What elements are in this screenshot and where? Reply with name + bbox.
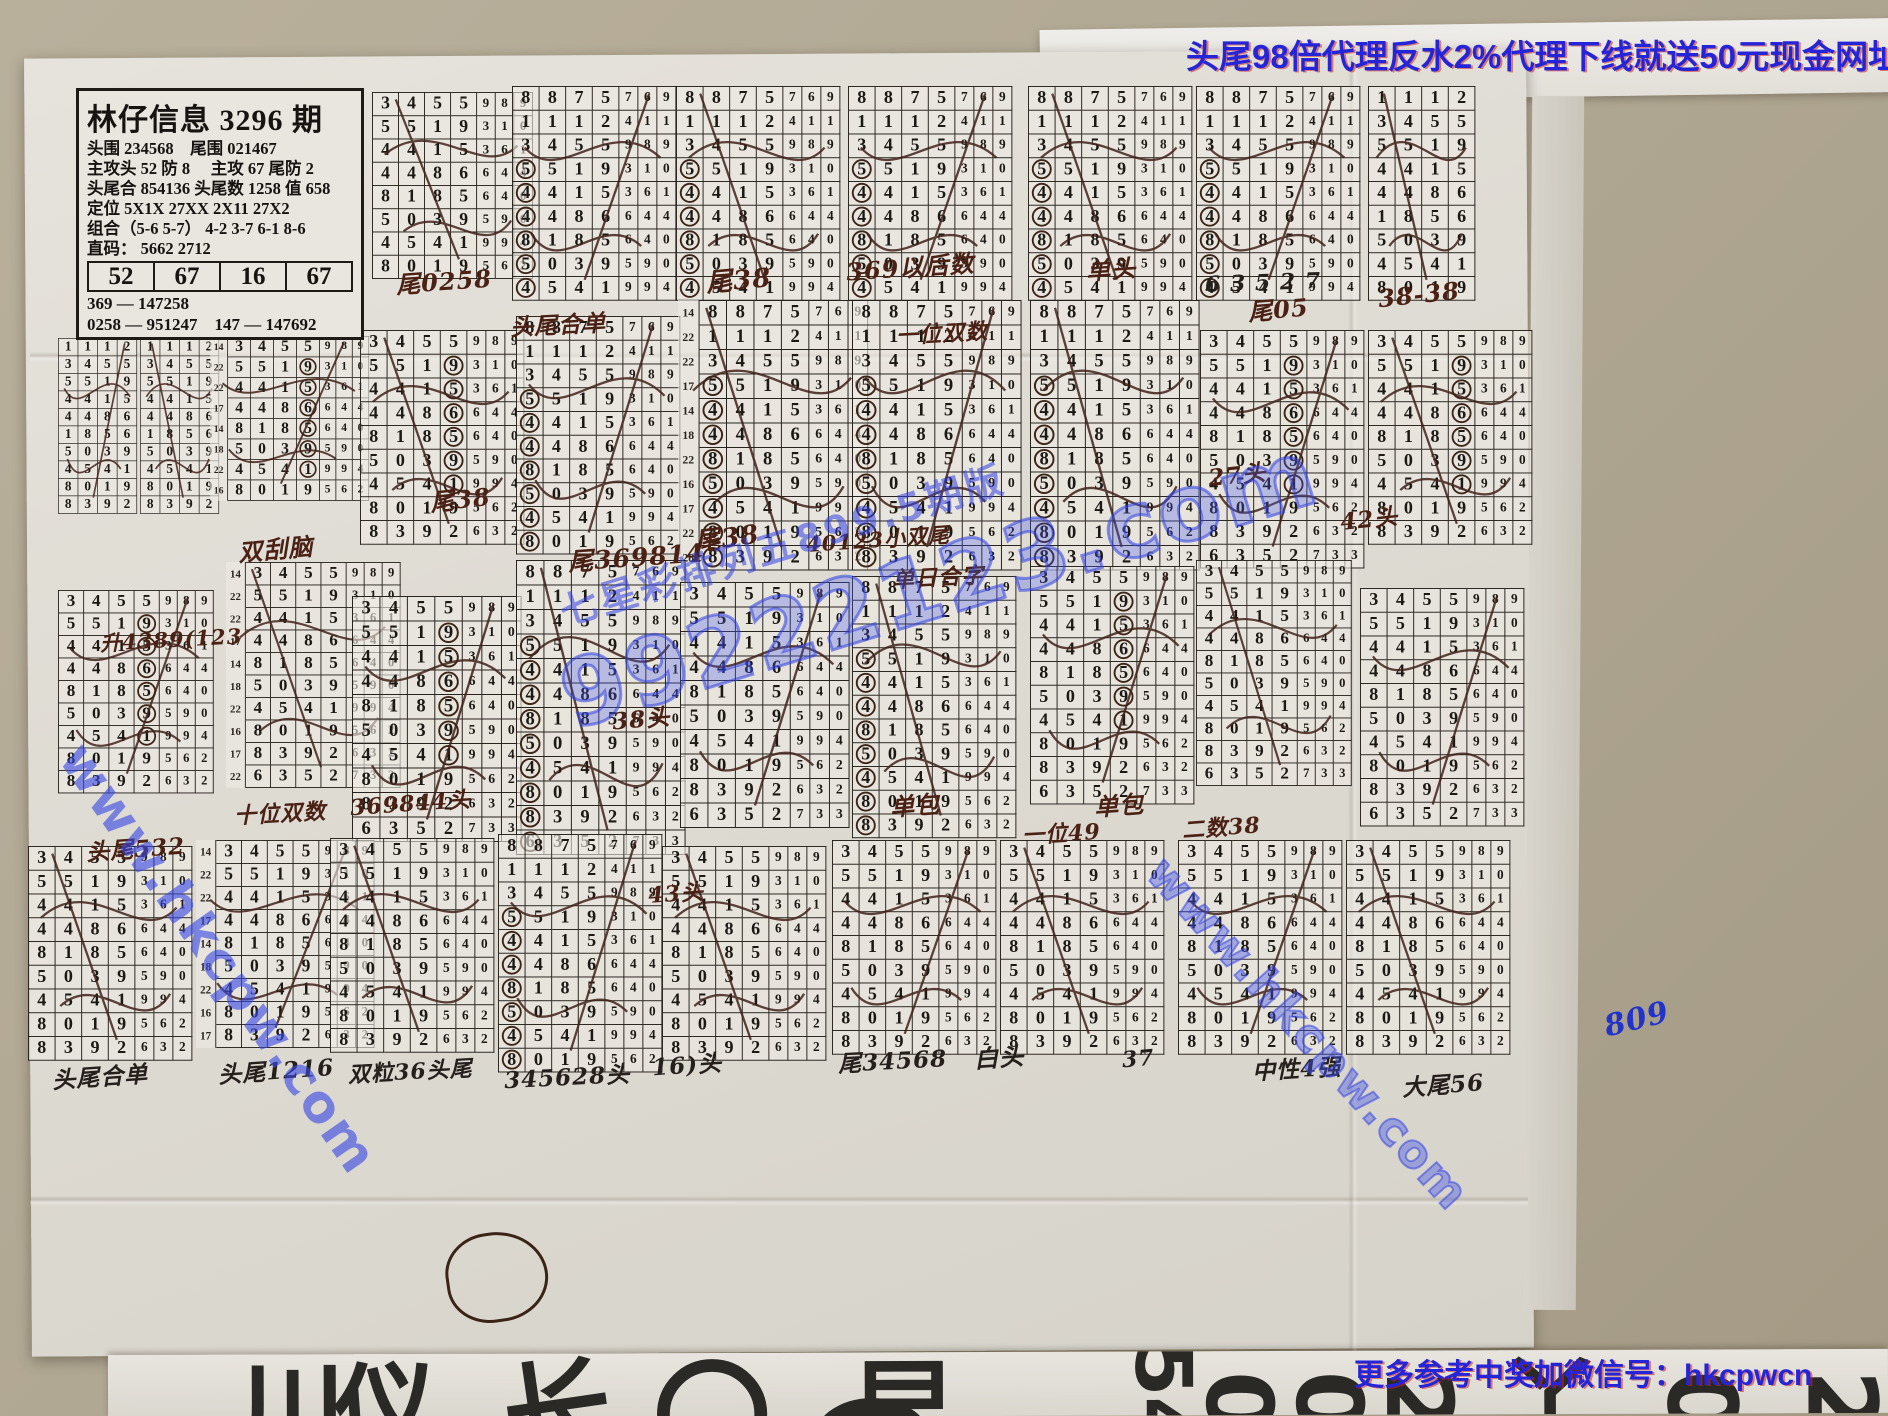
number-grid: 3455989551931044153614486644818564050395…: [1000, 840, 1164, 1055]
digit-cell: 4: [977, 912, 996, 936]
digit-cell: 9: [735, 778, 762, 803]
digit-cell: 8: [1154, 134, 1173, 158]
digit-cell: 4: [1368, 253, 1395, 277]
digit-cell: 4: [1145, 912, 1164, 936]
digit-cell: 2: [117, 496, 137, 514]
digit-cell: 3: [1085, 472, 1112, 497]
digit-cell: 3: [1028, 134, 1055, 158]
digit-cell: 0: [1145, 864, 1164, 888]
digit-cell: 3: [982, 545, 1002, 570]
digit-cell: 5: [134, 680, 159, 703]
digit-cell: 3: [55, 1036, 82, 1060]
digit-cell: 9: [592, 253, 619, 277]
digit-cell: 3: [809, 374, 829, 399]
digit-cell: 3: [1387, 802, 1414, 826]
digit-cell: 9: [763, 705, 790, 730]
digit-cell: 5: [1272, 560, 1297, 583]
digit-cell: 3: [1303, 181, 1322, 205]
key-number-cell: 52: [89, 263, 155, 290]
digit-cell: 5: [1368, 449, 1395, 473]
digit-cell: 9: [928, 158, 955, 182]
digit-cell: 4: [1304, 912, 1323, 936]
digit-cell: 8: [330, 1005, 357, 1029]
digit-cell: 0: [195, 703, 213, 726]
digit-cell: 0: [1333, 673, 1351, 696]
digit-cell: 1: [134, 725, 159, 748]
digit-cell: 9: [1304, 959, 1323, 983]
digit-cell: 4: [84, 590, 109, 613]
digit-cell: 1: [571, 781, 598, 806]
digit-cell: 1: [852, 600, 879, 624]
digit-cell: 5: [78, 373, 98, 391]
digit-cell: 8: [1254, 402, 1281, 426]
digit-cell: 5: [1346, 864, 1373, 888]
digit-cell: 0: [1173, 253, 1192, 277]
digit-cell: 5: [1250, 134, 1277, 158]
digit-cell: 3: [1422, 229, 1449, 253]
digit-cell: 4: [380, 596, 407, 621]
digit-cell: 5: [437, 1005, 456, 1029]
digit-cell: 5: [135, 1013, 154, 1037]
digit-cell: 1: [475, 886, 494, 910]
digit-cell: 9: [1448, 354, 1475, 378]
digit-cell: 8: [624, 882, 643, 906]
digit-cell: 1: [543, 459, 570, 483]
digit-cell: 1: [1247, 718, 1272, 741]
digit-cell: 3: [810, 778, 830, 803]
digit-cell: 9: [1272, 718, 1297, 741]
digit-cell: 5: [1027, 983, 1054, 1007]
digit-cell: 8: [1030, 661, 1057, 685]
digit-cell: 9: [982, 496, 1002, 521]
digit-cell: 1: [571, 585, 598, 610]
digit-cell: 4: [28, 918, 55, 942]
digit-cell: 9: [1513, 330, 1532, 354]
digit-cell: 1: [1280, 473, 1307, 497]
digit-cell: 5: [293, 932, 319, 955]
digit-cell: 1: [55, 941, 82, 965]
digit-cell: 5: [451, 92, 477, 115]
digit-cell: 1: [410, 981, 437, 1005]
digit-cell: 4: [543, 411, 570, 435]
digit-cell: 9: [1448, 134, 1475, 158]
digit-cell: 4: [1028, 205, 1055, 229]
digit-cell: 4: [512, 276, 539, 300]
digit-cell: 4: [1175, 709, 1194, 733]
digit-cell: 1: [1400, 888, 1427, 912]
digit-cell: 6: [962, 447, 982, 472]
digit-cell: 4: [1322, 229, 1341, 253]
digit-cell: 4: [539, 134, 566, 158]
digit-cell: 9: [1453, 840, 1472, 864]
digit-cell: 5: [387, 473, 414, 497]
digit-cell: 9: [1140, 496, 1160, 521]
number-grid: 1434559892255193102244153611744866441481…: [210, 336, 369, 501]
digit-cell: 8: [1000, 935, 1027, 959]
digit-cell: 9: [319, 459, 335, 480]
digit-cell: 8: [1346, 1030, 1373, 1054]
digit-cell: 4: [1000, 888, 1027, 912]
digit-cell: 4: [859, 888, 886, 912]
digit-cell: 4: [1360, 636, 1387, 660]
digit-cell: 8: [703, 86, 730, 110]
digit-cell: 9: [1341, 134, 1360, 158]
digit-cell: 4: [1387, 588, 1414, 612]
digit-cell: 3: [906, 743, 933, 767]
digit-cell: 1: [763, 729, 790, 754]
digit-cell: 5: [832, 959, 859, 983]
digit-cell: 1: [1250, 158, 1277, 182]
digit-cell: 5: [886, 840, 913, 864]
digit-cell: 4: [242, 886, 268, 909]
digit-cell: 4: [1145, 983, 1164, 1007]
digit-cell: 1: [689, 941, 716, 965]
digit-cell: 9: [802, 276, 821, 300]
digit-cell: 9: [1126, 983, 1145, 1007]
digit-cell: 6: [982, 521, 1002, 546]
digit-cell: 0: [829, 705, 849, 730]
digit-cell: 1: [384, 862, 411, 886]
digit-cell: 8: [1055, 86, 1082, 110]
digit-cell: 5: [160, 461, 180, 478]
digit-cell: 5: [907, 349, 934, 374]
digit-cell: 4: [626, 585, 646, 610]
digit-cell: 1: [98, 478, 118, 496]
digit-cell: 3: [271, 742, 296, 765]
key-number-cell: 67: [155, 263, 221, 290]
digit-cell: 5: [592, 229, 619, 253]
digit-cell: 5: [360, 354, 387, 378]
digit-cell: 5: [228, 439, 251, 460]
digit-cell: 5: [626, 732, 646, 757]
row-count: 22: [196, 978, 216, 1001]
digit-cell: 1: [703, 229, 730, 253]
digit-cell: 9: [159, 725, 177, 748]
digit-cell: 4: [512, 181, 539, 205]
digit-cell: 3: [1107, 864, 1126, 888]
digit-cell: 5: [879, 648, 906, 672]
digit-cell: 4: [330, 981, 357, 1005]
digit-cell: 2: [781, 545, 808, 570]
digit-cell: 1: [907, 398, 934, 423]
digit-cell: 9: [959, 766, 978, 790]
digit-cell: 4: [978, 719, 997, 743]
digit-cell: 2: [1145, 1007, 1164, 1031]
digit-cell: 4: [516, 506, 543, 530]
digit-cell: 4: [832, 912, 859, 936]
digit-cell: 3: [1486, 778, 1505, 802]
newspaper-glyph: 长: [497, 1352, 619, 1416]
digit-cell: 3: [566, 253, 593, 277]
digit-cell: 3: [1414, 707, 1441, 731]
digit-cell: 1: [251, 418, 274, 439]
digit-cell: 4: [623, 340, 642, 364]
digit-cell: 5: [1140, 521, 1160, 546]
number-grid: 3455989551931044153614486644818564050395…: [1360, 588, 1524, 826]
digit-cell: 9: [619, 276, 638, 300]
digit-cell: 1: [267, 1001, 293, 1024]
digit-cell: 3: [848, 134, 875, 158]
digit-cell: 7: [790, 803, 810, 828]
digit-cell: 8: [1250, 229, 1277, 253]
digit-cell: 5: [619, 253, 638, 277]
digit-cell: 5: [321, 652, 346, 675]
digit-cell: 1: [624, 858, 643, 882]
digit-cell: 5: [1280, 378, 1307, 402]
digit-cell: 7: [619, 86, 638, 110]
digit-cell: 5: [117, 391, 137, 409]
digit-cell: 3: [571, 732, 598, 757]
digit-cell: 4: [852, 398, 879, 423]
digit-cell: 5: [539, 276, 566, 300]
digit-cell: 1: [1222, 650, 1247, 673]
digit-cell: 6: [159, 680, 177, 703]
digit-cell: 5: [1276, 86, 1303, 110]
row-count: 22: [678, 325, 699, 350]
digit-cell: 5: [245, 585, 270, 608]
digit-cell: 3: [626, 634, 646, 659]
digit-cell: 1: [1426, 983, 1453, 1007]
digit-cell: 5: [271, 585, 296, 608]
digit-cell: 3: [296, 675, 321, 698]
digit-cell: 9: [828, 472, 848, 497]
digit-cell: 6: [1426, 912, 1453, 936]
digit-cell: 2: [1001, 521, 1021, 546]
digit-cell: 8: [498, 834, 525, 858]
digit-cell: 7: [754, 300, 781, 325]
digit-cell: 4: [859, 840, 886, 864]
digit-cell: 8: [1400, 912, 1427, 936]
row-count: 22: [226, 765, 245, 788]
digit-cell: 5: [1227, 354, 1254, 378]
digit-cell: 5: [58, 373, 78, 391]
digit-cell: 3: [274, 439, 297, 460]
handwritten-label: 一位双数: [895, 314, 989, 351]
digit-cell: 4: [1247, 695, 1272, 718]
digit-cell: 6: [1486, 636, 1505, 660]
digit-cell: 5: [330, 862, 357, 886]
digit-cell: 5: [928, 86, 955, 110]
digit-cell: 8: [98, 408, 118, 426]
digit-cell: 2: [596, 340, 623, 364]
digit-cell: 0: [1323, 959, 1342, 983]
digit-cell: 6: [1453, 1030, 1472, 1054]
digit-cell: 4: [958, 935, 977, 959]
digit-cell: 1: [735, 631, 762, 656]
digit-cell: 8: [360, 520, 387, 544]
digit-cell: 5: [58, 443, 78, 461]
digit-cell: 6: [451, 162, 477, 185]
digit-cell: 5: [790, 705, 810, 730]
digit-cell: 5: [959, 790, 978, 814]
digit-cell: 1: [544, 707, 571, 732]
digit-cell: 9: [1156, 685, 1175, 709]
digit-cell: 1: [180, 338, 200, 356]
digit-cell: 1: [380, 694, 407, 719]
digit-cell: 5: [462, 719, 482, 744]
digit-cell: 1: [997, 600, 1016, 624]
digit-cell: 5: [716, 846, 743, 870]
digit-cell: 1: [735, 607, 762, 632]
digit-cell: 5: [676, 253, 703, 277]
digit-cell: 4: [662, 989, 689, 1013]
digit-cell: 3: [425, 209, 451, 232]
digit-cell: 6: [638, 181, 657, 205]
digit-cell: 8: [662, 1013, 689, 1037]
digit-cell: 8: [516, 805, 543, 830]
digit-cell: 9: [1297, 695, 1315, 718]
digit-cell: 8: [1486, 588, 1505, 612]
digit-cell: 4: [802, 229, 821, 253]
digit-cell: 6: [1494, 378, 1513, 402]
digit-cell: 0: [821, 229, 840, 253]
number-grid: 3455989551931044153614486644818564050395…: [1200, 330, 1364, 568]
digit-cell: 3: [1054, 959, 1081, 983]
digit-cell: 5: [321, 562, 346, 585]
digit-cell: 4: [357, 886, 384, 910]
digit-cell: 9: [1494, 449, 1513, 473]
digit-cell: 1: [1232, 1007, 1259, 1031]
digit-cell: 4: [55, 894, 82, 918]
digit-cell: 1: [875, 110, 902, 134]
digit-cell: 5: [399, 232, 425, 255]
digit-cell: 7: [809, 300, 829, 325]
digit-cell: 6: [108, 918, 135, 942]
digit-cell: 9: [1113, 521, 1140, 546]
digit-cell: 9: [1323, 840, 1342, 864]
digit-cell: 6: [467, 402, 486, 426]
digit-cell: 0: [689, 1013, 716, 1037]
digit-cell: 9: [180, 496, 200, 514]
digit-cell: 0: [879, 743, 906, 767]
digit-cell: 5: [596, 459, 623, 483]
digit-cell: 6: [1467, 660, 1486, 684]
digit-cell: 8: [1414, 683, 1441, 707]
digit-cell: 4: [1223, 134, 1250, 158]
digit-cell: 9: [1467, 588, 1486, 612]
digit-cell: 8: [516, 781, 543, 806]
digit-cell: 6: [642, 411, 661, 435]
digit-cell: 1: [173, 894, 192, 918]
digit-cell: 4: [330, 886, 357, 910]
digit-cell: 9: [108, 1013, 135, 1037]
digit-cell: 3: [1205, 1030, 1232, 1054]
digit-cell: 5: [498, 906, 525, 930]
digit-cell: 7: [1250, 86, 1277, 110]
digit-cell: 9: [414, 520, 441, 544]
digit-cell: 4: [727, 423, 754, 448]
digit-cell: 6: [1307, 520, 1326, 544]
digit-cell: 1: [977, 888, 996, 912]
digit-cell: 5: [216, 955, 242, 978]
digit-cell: 3: [829, 803, 849, 828]
digit-cell: 6: [578, 953, 605, 977]
digit-cell: 8: [566, 205, 593, 229]
digit-cell: 4: [195, 658, 213, 681]
digit-cell: 4: [1058, 423, 1085, 448]
digit-cell: 6: [1322, 86, 1341, 110]
digit-cell: 2: [763, 778, 790, 803]
digit-cell: 4: [1491, 983, 1510, 1007]
digit-cell: 8: [907, 447, 934, 472]
digit-cell: 4: [498, 1024, 525, 1048]
digit-cell: 5: [1373, 983, 1400, 1007]
digit-cell: 9: [997, 576, 1016, 600]
digit-cell: 6: [477, 185, 496, 208]
digit-cell: 5: [1426, 935, 1453, 959]
digit-cell: 1: [1001, 325, 1021, 350]
digit-cell: 8: [1232, 912, 1259, 936]
digit-cell: 3: [1140, 374, 1160, 399]
digit-cell: 2: [928, 110, 955, 134]
digit-cell: 5: [1110, 566, 1137, 590]
digit-cell: 4: [384, 981, 411, 1005]
digit-cell: 6: [1196, 763, 1221, 786]
digit-cell: 5: [58, 703, 83, 726]
digit-cell: 9: [1154, 253, 1173, 277]
digit-cell: 4: [173, 918, 192, 942]
digit-cell: 9: [657, 134, 676, 158]
digit-cell: 6: [962, 423, 982, 448]
digit-cell: 9: [643, 834, 662, 858]
digit-cell: 5: [662, 965, 689, 989]
digit-cell: 4: [271, 607, 296, 630]
digit-cell: 1: [407, 645, 434, 670]
digit-cell: 9: [1472, 959, 1491, 983]
digit-cell: 8: [1494, 330, 1513, 354]
digit-cell: 0: [1395, 497, 1422, 521]
digit-cell: 4: [788, 918, 807, 942]
digit-cell: 9: [1422, 520, 1449, 544]
digit-cell: 8: [754, 423, 781, 448]
digit-cell: 6: [1140, 423, 1160, 448]
digit-cell: 4: [676, 276, 703, 300]
digit-cell: 4: [1505, 660, 1524, 684]
digit-cell: 4: [387, 378, 414, 402]
digit-cell: 4: [1222, 628, 1247, 651]
digit-cell: 4: [638, 205, 657, 229]
digit-cell: 9: [134, 748, 159, 771]
digit-cell: 4: [387, 402, 414, 426]
digit-cell: 1: [140, 426, 160, 444]
digit-cell: 9: [1448, 449, 1475, 473]
digit-cell: 9: [1084, 756, 1111, 780]
digit-cell: 9: [821, 134, 840, 158]
digit-cell: 8: [414, 402, 441, 426]
digit-cell: 9: [809, 496, 829, 521]
digit-cell: 1: [716, 894, 743, 918]
digit-cell: 9: [605, 1024, 624, 1048]
digit-cell: 1: [978, 648, 997, 672]
digit-cell: 7: [1082, 86, 1109, 110]
digit-cell: 9: [742, 870, 769, 894]
digit-cell: 4: [783, 110, 802, 134]
digit-cell: 0: [1333, 583, 1351, 606]
digit-cell: 3: [1467, 636, 1486, 660]
digit-cell: 8: [982, 349, 1002, 374]
digit-cell: 5: [1223, 158, 1250, 182]
digit-cell: 1: [242, 932, 268, 955]
digit-cell: 5: [1140, 472, 1160, 497]
digit-cell: 4: [977, 983, 996, 1007]
digit-cell: 3: [1303, 158, 1322, 182]
digit-cell: 3: [1137, 614, 1156, 638]
digit-cell: 5: [1107, 1007, 1126, 1031]
digit-cell: 9: [1440, 612, 1467, 636]
digit-cell: 0: [399, 209, 425, 232]
digit-cell: 0: [880, 472, 907, 497]
digit-cell: 4: [1227, 402, 1254, 426]
